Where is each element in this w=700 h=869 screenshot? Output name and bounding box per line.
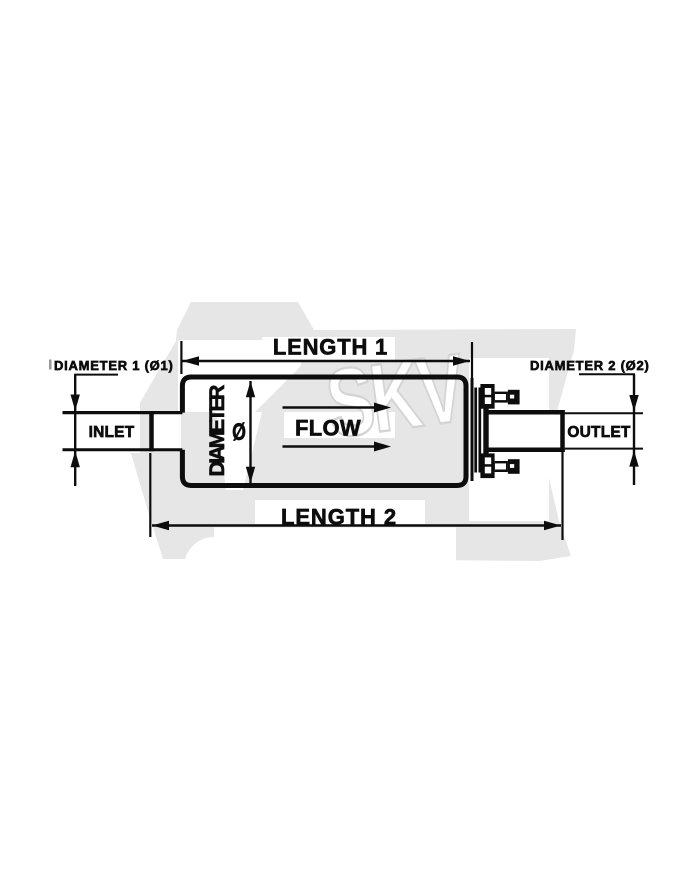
svg-text:OUTLET: OUTLET (567, 424, 631, 441)
svg-text:INLET: INLET (89, 424, 135, 441)
svg-text:DIAMETER 1 (Ø1): DIAMETER 1 (Ø1) (54, 358, 174, 373)
svg-text:LENGTH 1: LENGTH 1 (273, 335, 388, 360)
svg-text:FLOW: FLOW (295, 416, 361, 441)
svg-text:DIAMETER: DIAMETER (205, 384, 229, 476)
svg-text:DIAMETER 2 (Ø2): DIAMETER 2 (Ø2) (530, 358, 650, 373)
svg-text:Ø: Ø (232, 420, 246, 446)
